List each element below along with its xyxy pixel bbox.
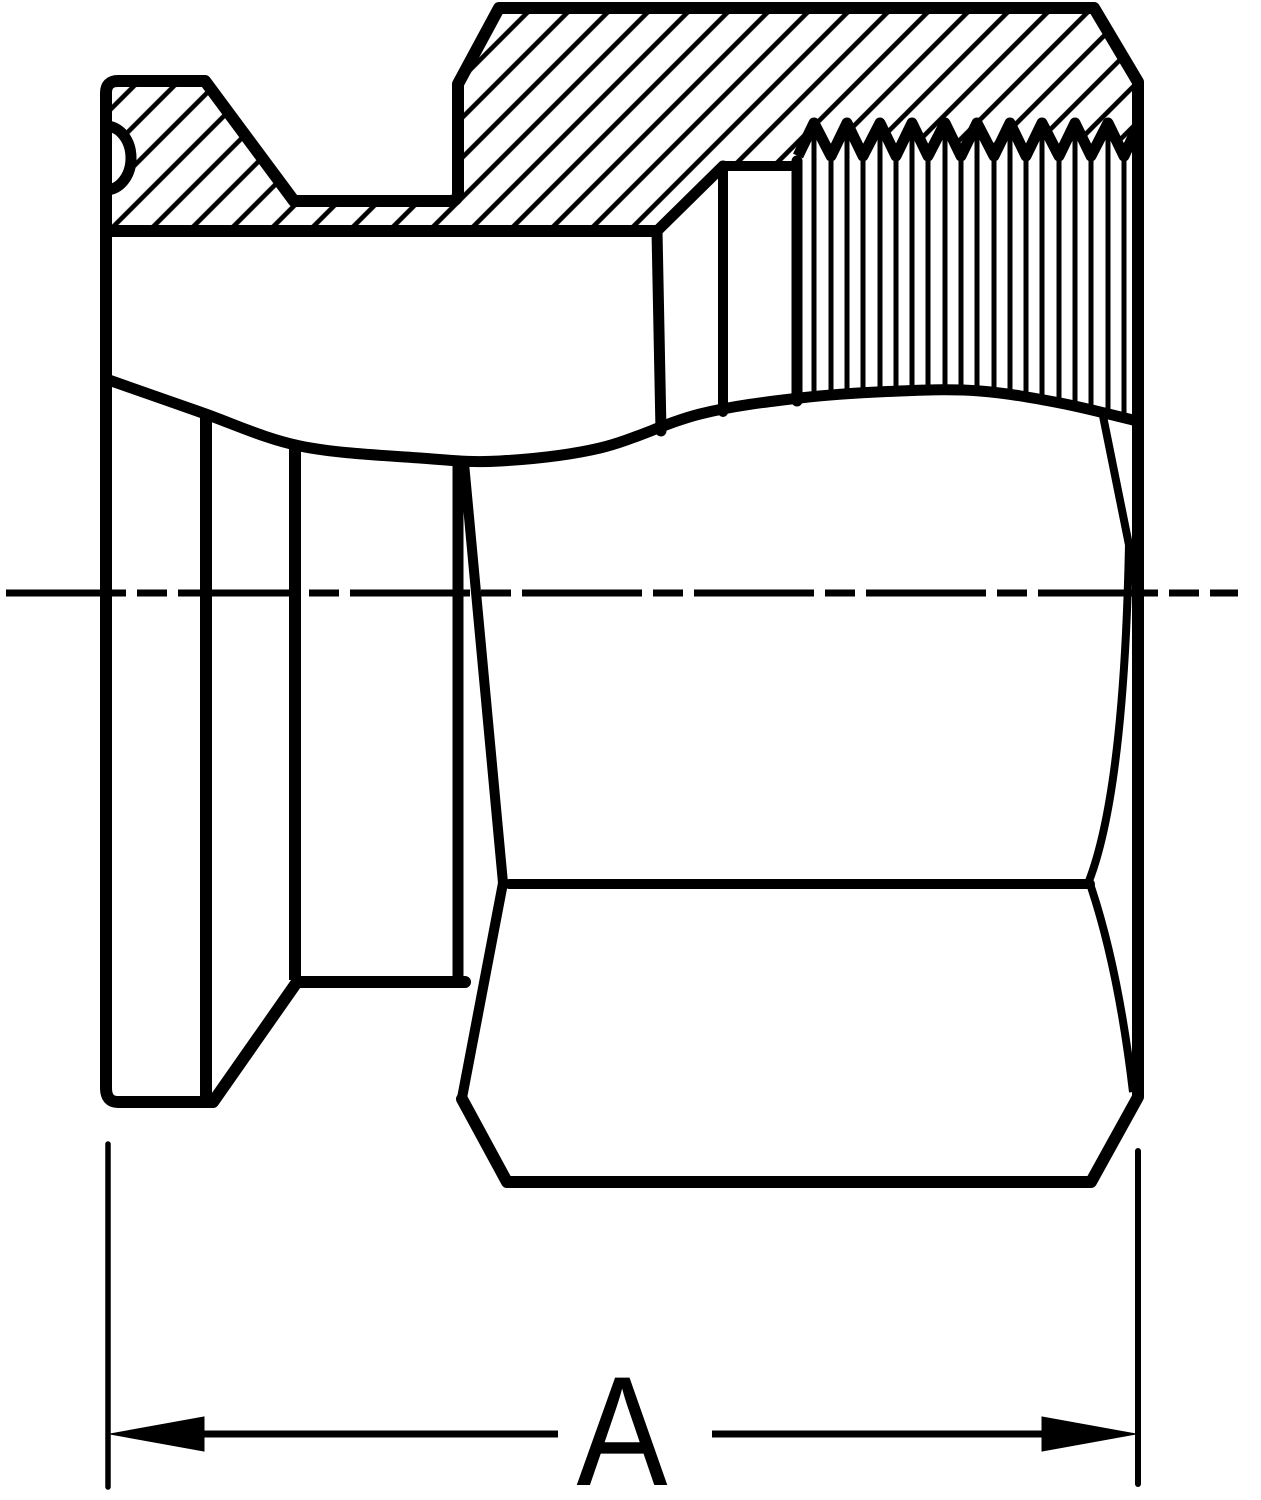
svg-text:A: A: [576, 1345, 667, 1500]
